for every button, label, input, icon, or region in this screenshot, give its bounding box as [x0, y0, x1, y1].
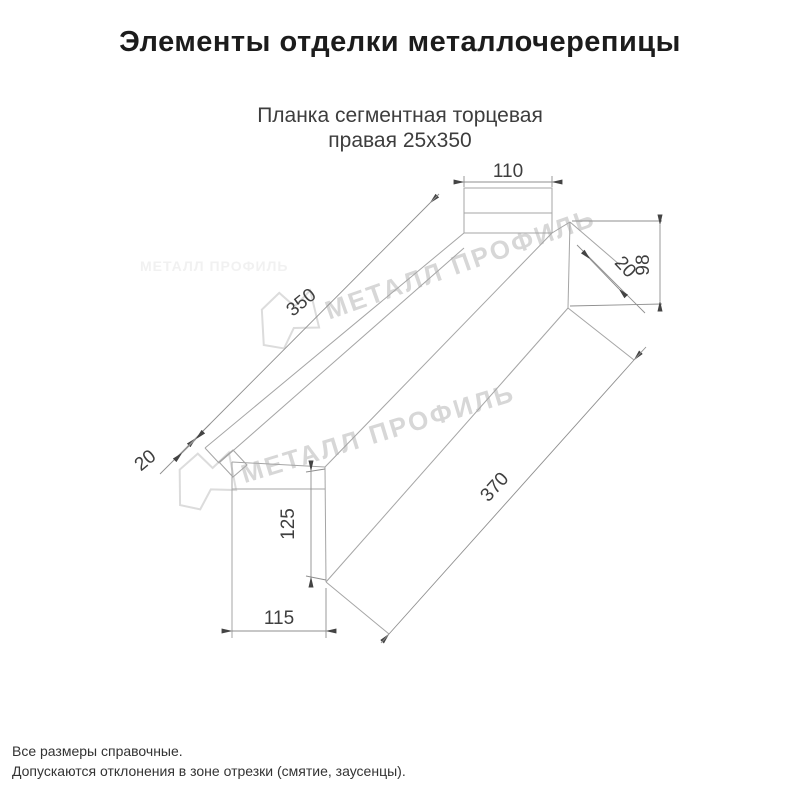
watermark-fragment: МЕТАЛЛ ПРОФИЛЬ — [140, 258, 289, 274]
dim-label-110: 110 — [493, 161, 523, 182]
footer-notes: Все размеры справочные. Допускаются откл… — [12, 741, 406, 781]
dim-label-115: 115 — [264, 608, 294, 629]
watermark-group: МЕТАЛЛ ПРОФИЛЬ МЕТАЛЛ ПРОФИЛЬ МЕТАЛЛ ПРО… — [140, 185, 602, 515]
watermark-upper: МЕТАЛЛ ПРОФИЛЬ — [249, 185, 601, 354]
drawing-page: Элементы отделки металлочерепицы Планка … — [0, 0, 800, 800]
note-line2: Допускаются отклонения в зоне отрезки (с… — [12, 761, 406, 781]
watermark-lower: МЕТАЛЛ ПРОФИЛЬ — [167, 360, 520, 515]
technical-drawing: МЕТАЛЛ ПРОФИЛЬ МЕТАЛЛ ПРОФИЛЬ МЕТАЛЛ ПРО… — [0, 0, 800, 800]
watermark-text: МЕТАЛЛ ПРОФИЛЬ — [321, 202, 599, 325]
note-line1: Все размеры справочные. — [12, 741, 406, 761]
dim-label-20-left: 20 — [131, 446, 161, 476]
dim-label-98: 98 — [633, 254, 654, 275]
dim-label-350: 350 — [283, 285, 321, 321]
watermark-text: МЕТАЛЛ ПРОФИЛЬ — [237, 377, 518, 489]
dim-label-125: 125 — [278, 508, 299, 540]
